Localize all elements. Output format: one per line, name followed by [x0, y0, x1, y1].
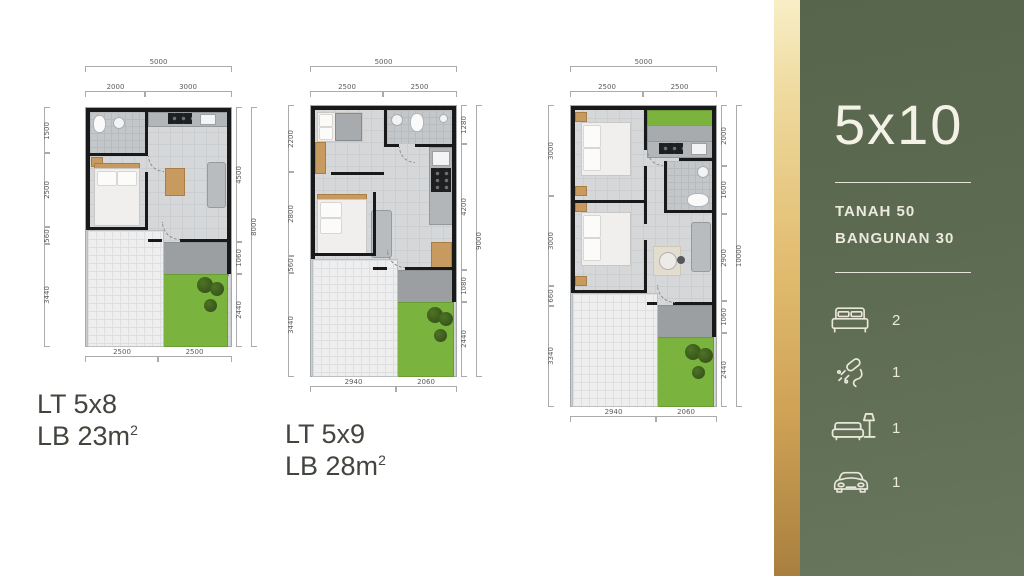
dim-line: 3440 [288, 272, 294, 377]
dim-label: 5000 [635, 58, 653, 66]
dim-label: 8000 [250, 218, 258, 236]
dim-label: 2500 [598, 83, 616, 91]
slide: 5000 2000 3000 1500 2500 560 3440 4500 1… [0, 0, 1024, 576]
dim-line: 9000 [476, 105, 482, 377]
nightstand [575, 276, 587, 286]
dim-line: 2060 [655, 416, 717, 422]
wall [145, 112, 148, 156]
wall [373, 192, 376, 256]
wall [90, 227, 148, 230]
shower-icon [830, 354, 872, 390]
dim-line: 2440 [721, 332, 727, 407]
dim-line: 2000 [721, 105, 727, 167]
dim-label: 2060 [417, 378, 435, 386]
duvet [335, 113, 362, 141]
pillow [97, 171, 117, 186]
toilet [410, 113, 424, 132]
dim-line: 3340 [548, 305, 554, 407]
bush [698, 348, 713, 363]
dim-label: 2500 [43, 181, 51, 199]
plan2-building-sup: 2 [378, 452, 386, 468]
wall [373, 267, 387, 270]
wall [644, 240, 647, 293]
kitchen-sink [200, 114, 216, 125]
dim-line: 1600 [721, 165, 727, 215]
garden [396, 302, 454, 377]
nightstand [575, 186, 587, 196]
wall [664, 161, 667, 213]
feature-bedrooms: 2 [830, 304, 870, 336]
dim-line: 1280 [461, 105, 467, 145]
wall [384, 110, 387, 147]
wall [145, 172, 148, 230]
dim-label: 1280 [460, 116, 468, 134]
car-icon [830, 466, 872, 498]
garden [162, 274, 228, 347]
wall [575, 290, 644, 293]
dim-line: 2200 [288, 105, 294, 173]
bush [439, 312, 453, 326]
wall [90, 153, 148, 156]
wall [387, 144, 399, 147]
sink [697, 166, 709, 178]
round-table [659, 252, 677, 270]
carport [572, 293, 658, 407]
wall [148, 239, 162, 242]
dim-line: 10000 [736, 105, 742, 407]
sofa [691, 222, 711, 272]
dim-line: 3000 [548, 195, 554, 287]
pillow [117, 171, 137, 186]
dim-label: 3340 [547, 347, 555, 365]
living-room-count: 1 [892, 420, 900, 437]
carport-count: 1 [892, 474, 900, 491]
dim-line: 2940 [570, 416, 657, 422]
plan2-building: LB 28m [285, 451, 378, 481]
wall [664, 210, 712, 213]
dim-line: 3440 [44, 243, 50, 347]
dim-line: 2500 [310, 91, 384, 97]
sofa [207, 162, 226, 208]
sink [113, 117, 125, 129]
bed-icon [830, 304, 870, 336]
dim-label: 560 [43, 229, 51, 242]
dim-line: 1060 [721, 300, 727, 334]
wall [331, 172, 384, 175]
bush [434, 329, 447, 342]
wall [227, 108, 231, 274]
dim-label: 2000 [720, 127, 728, 145]
plan1-building-sup: 2 [130, 422, 138, 438]
wall [644, 166, 647, 224]
dim-label: 2440 [460, 330, 468, 348]
dim-label: 1060 [720, 308, 728, 326]
dim-label: 2440 [235, 301, 243, 319]
wall [311, 106, 315, 259]
dim-label: 1080 [460, 277, 468, 295]
dim-label: 2500 [411, 83, 429, 91]
floor-plan-5x8 [85, 107, 232, 347]
dim-label: 3000 [547, 142, 555, 160]
plan2-label: LT 5x9 LB 28m2 [285, 418, 386, 483]
divider [835, 272, 971, 273]
dim-label: 2440 [720, 361, 728, 379]
dim-line: 2500 [642, 91, 717, 97]
kitchen-sink [432, 151, 450, 166]
dim-label: 2940 [605, 408, 623, 416]
bedroom-count: 2 [892, 312, 900, 329]
dim-line: 2800 [288, 171, 294, 257]
pillow [583, 125, 601, 148]
pillow [583, 148, 601, 171]
floor-plan-5x10 [570, 105, 717, 407]
pillow [320, 218, 342, 234]
floor-plan-5x9 [310, 105, 457, 377]
dim-line: 8000 [251, 107, 257, 347]
dim-line: 2060 [395, 386, 457, 392]
dim-label: 2500 [113, 348, 131, 356]
door-arc [399, 147, 415, 163]
dim-line: 1080 [461, 269, 467, 303]
wall [180, 239, 227, 242]
dim-line: 2900 [721, 213, 727, 302]
door-arc [162, 222, 180, 240]
bush [210, 282, 224, 296]
dim-line: 2500 [570, 91, 644, 97]
garden [656, 337, 714, 407]
dim-line: 5000 [570, 66, 717, 72]
building-label: BANGUNAN 30 [835, 230, 954, 247]
door-arc [148, 156, 164, 172]
pillow [320, 202, 342, 218]
dim-label: 2200 [287, 130, 295, 148]
bathroom-count: 1 [892, 364, 900, 381]
nightstand [575, 202, 587, 212]
pillow [583, 215, 601, 238]
plan1-building: LB 23m [37, 421, 130, 451]
dim-label: 2500 [338, 83, 356, 91]
dim-line: 2500 [44, 152, 50, 228]
dim-line: 1500 [44, 107, 50, 154]
feature-living-room: 1 [830, 410, 876, 446]
dim-line: 3000 [144, 91, 232, 97]
dim-label: 5000 [375, 58, 393, 66]
dim-label: 660 [547, 289, 555, 302]
bush [692, 366, 705, 379]
kitchen-sink [691, 143, 707, 155]
terrace [396, 270, 454, 304]
shower-drain [439, 114, 448, 123]
wall [415, 144, 452, 147]
nightstand [575, 112, 587, 122]
dim-line: 2500 [382, 91, 457, 97]
wall [86, 108, 90, 230]
terrace [656, 305, 714, 339]
dim-label: 3440 [43, 286, 51, 304]
terrace [162, 242, 229, 276]
dim-line: 4200 [461, 143, 467, 271]
wall [315, 253, 373, 256]
dim-label: 2500 [186, 348, 204, 356]
dim-label: 1060 [235, 249, 243, 267]
sofa-icon [830, 410, 876, 446]
wall [452, 106, 456, 302]
dim-label: 5000 [150, 58, 168, 66]
sink [391, 114, 403, 126]
dim-label: 10000 [735, 245, 743, 267]
land-label: TANAH 50 [835, 203, 915, 220]
wardrobe [315, 142, 326, 174]
toilet [93, 115, 106, 133]
stove [431, 168, 451, 192]
wall [673, 302, 712, 305]
stove [168, 113, 192, 124]
dim-line: 1060 [236, 241, 242, 275]
accent-strip [774, 0, 800, 576]
dim-label: 2000 [107, 83, 125, 91]
dim-label: 2940 [345, 378, 363, 386]
door-arc [657, 285, 675, 303]
plan1-label: LT 5x8 LB 23m2 [37, 388, 138, 453]
plan1-land: LT 5x8 [37, 389, 117, 419]
wall [405, 267, 452, 270]
dim-line: 5000 [85, 66, 232, 72]
dim-label: 3000 [179, 83, 197, 91]
dim-label: 3440 [287, 316, 295, 334]
dim-label: 9000 [475, 232, 483, 250]
dim-line: 3000 [548, 105, 554, 197]
dim-label: 560 [287, 258, 295, 271]
dim-label: 4200 [460, 198, 468, 216]
dim-line: 660 [548, 285, 554, 307]
divider [835, 182, 971, 183]
dim-label: 1500 [43, 122, 51, 140]
dim-label: 1600 [720, 181, 728, 199]
coffee-table [165, 168, 185, 196]
door-arc [647, 150, 663, 166]
pillow [583, 238, 601, 261]
dim-label: 3000 [547, 232, 555, 250]
feature-carport: 1 [830, 466, 872, 498]
wall [644, 110, 647, 150]
bush [204, 299, 217, 312]
wall [647, 302, 657, 305]
wall [575, 200, 644, 203]
dim-line: 2500 [85, 356, 159, 362]
wall [679, 158, 712, 161]
wall [712, 106, 716, 337]
chair [677, 256, 685, 264]
wall [86, 108, 231, 112]
plan2-land: LT 5x9 [285, 419, 365, 449]
dim-line: 2440 [461, 301, 467, 377]
carport [87, 230, 164, 347]
dim-line: 2000 [85, 91, 146, 97]
pillow [319, 127, 333, 140]
dim-label: 2800 [287, 205, 295, 223]
dim-label: 2060 [677, 408, 695, 416]
dim-label: 4500 [235, 166, 243, 184]
pillow [319, 114, 333, 127]
dim-label: 2500 [671, 83, 689, 91]
feature-bathrooms: 1 [830, 354, 872, 390]
dim-line: 2500 [157, 356, 232, 362]
dim-line: 4500 [236, 107, 242, 243]
desk [431, 242, 452, 270]
panel-title: 5x10 [834, 92, 963, 157]
carport [312, 259, 398, 377]
toilet [687, 193, 709, 207]
dim-line: 5000 [310, 66, 457, 72]
dim-line: 2940 [310, 386, 397, 392]
dim-label: 2900 [720, 249, 728, 267]
dim-line: 2440 [236, 273, 242, 347]
